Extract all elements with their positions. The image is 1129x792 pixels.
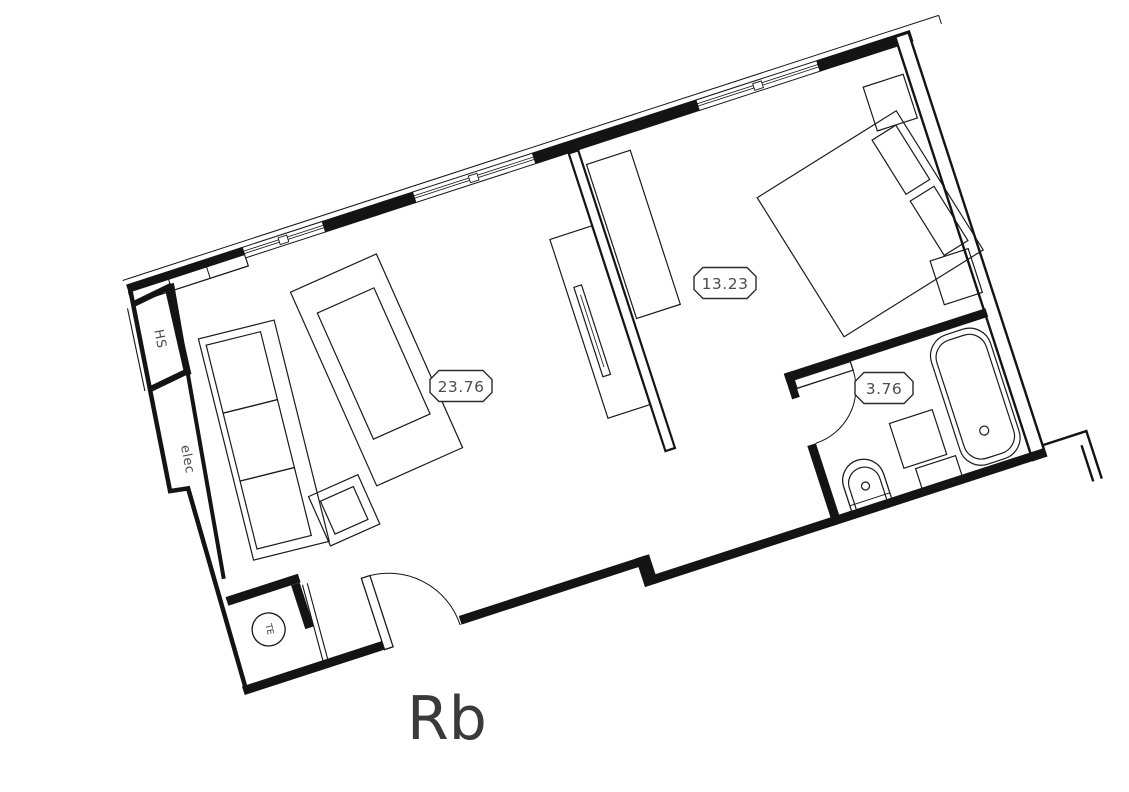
facade-line: [123, 15, 939, 280]
elec-label: elec: [177, 444, 197, 475]
window-3: [696, 61, 820, 111]
floor-plan-page: HS elec TE: [0, 0, 1129, 792]
entrance-door: [361, 554, 460, 650]
sofa-outline: [198, 320, 329, 560]
sofa-cushion: [240, 468, 311, 549]
plan-title: Rb: [407, 684, 487, 754]
washbasin-unit: [889, 407, 963, 495]
bathroom-top-wall: [784, 308, 988, 382]
area-label-bathroom: 3.76: [855, 373, 913, 404]
bathroom-left-wall: [807, 443, 841, 525]
washbasin: [889, 410, 946, 469]
apartment-plan: HS elec TE: [104, 12, 1102, 754]
bathroom-area-value: 3.76: [866, 380, 903, 398]
side-table-inner: [320, 487, 368, 535]
window-2: [413, 153, 536, 202]
sofa-cushion: [223, 400, 294, 481]
right-wall: [895, 33, 1046, 461]
area-label-bedroom: 13.23: [694, 268, 756, 299]
sofa-cushion: [206, 332, 277, 413]
sofa: [198, 320, 329, 560]
living-table: [290, 254, 462, 486]
bottom-wall-mid: [459, 555, 648, 624]
bedroom-area-value: 13.23: [702, 275, 749, 293]
hs-label: HS: [150, 328, 168, 350]
bottom-wall-right: [652, 517, 835, 584]
facade-end-tick: [939, 15, 942, 24]
hs-closet-bottom-wall: [148, 370, 192, 389]
hs-closet-door-line: [123, 306, 158, 389]
te-niche-top-wall: [226, 574, 301, 606]
area-label-living: 23.76: [430, 371, 492, 402]
partition-wall: [569, 150, 675, 451]
floor-plan-drawing: HS elec TE: [0, 0, 1129, 792]
table-inner: [317, 288, 430, 439]
side-table-outline: [309, 475, 380, 546]
te-niche-right-wall: [291, 583, 314, 630]
bathtub-drain: [979, 425, 990, 436]
neighbor-wall-stub: [1043, 431, 1102, 493]
desk-shelf-line: [580, 295, 603, 367]
table-outline: [290, 254, 462, 486]
living-area-value: 23.76: [438, 378, 485, 396]
washbasin-base: [916, 456, 963, 492]
window-1: [242, 221, 325, 257]
wall-pier: [322, 192, 416, 233]
bottom-wall-left: [242, 640, 386, 695]
entrance-door-leaf: [361, 576, 393, 650]
bed-pillow: [872, 125, 930, 194]
side-table: [309, 475, 380, 546]
